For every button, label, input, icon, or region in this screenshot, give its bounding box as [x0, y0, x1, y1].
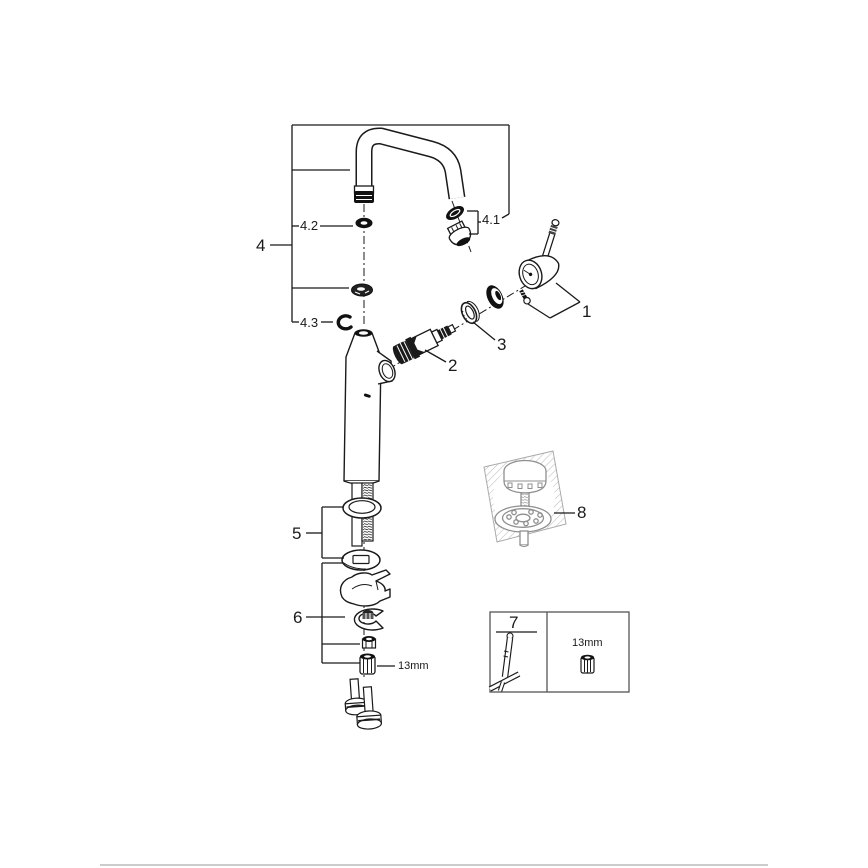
base-gasket-ring [343, 498, 381, 518]
label-part-3: 3 [497, 336, 506, 353]
callout-lines [270, 125, 580, 666]
label-part-8: 8 [577, 504, 586, 521]
spout-outlet-seal [444, 203, 467, 223]
retaining-clip [338, 316, 351, 329]
callout-group-5 [306, 507, 344, 558]
spout-tube [364, 136, 457, 198]
hex-nut [363, 636, 376, 648]
mounting-studs [344, 678, 382, 730]
label-group-5: 5 [292, 525, 301, 542]
label-part-4-2: 4.2 [300, 219, 318, 232]
label-group-6: 6 [293, 609, 302, 626]
horseshoe-clamp [354, 609, 383, 630]
faucet-exploded-drawing [0, 0, 868, 868]
label-group-4: 4 [256, 237, 265, 254]
label-part-4-3: 4.3 [300, 316, 318, 329]
label-13mm-diagram: 13mm [398, 661, 429, 672]
spout-end-collar [354, 186, 374, 203]
diagram-canvas: 4 4.1 4.2 4.3 1 2 3 5 6 8 13mm 7 13mm [0, 0, 868, 868]
escutcheon-cap [483, 282, 507, 311]
sleeve-nut-13mm [360, 654, 375, 675]
callout-part-3 [473, 322, 495, 340]
cartridge-retaining-ring [458, 299, 482, 326]
spout-bearing-washer [352, 284, 373, 296]
label-box-7: 7 [509, 614, 518, 631]
bottom-divider [100, 864, 768, 866]
label-part-4-1: 4.1 [482, 213, 500, 226]
label-13mm-box: 13mm [572, 638, 603, 649]
lever-handle [506, 217, 577, 292]
mounting-clamp-bracket [340, 570, 390, 606]
label-part-1: 1 [582, 303, 591, 320]
handle-screw [518, 289, 531, 305]
stabilizer-washer [342, 550, 380, 570]
label-part-2: 2 [448, 357, 457, 374]
socket-13mm-tool [581, 655, 594, 673]
spout-o-ring [356, 218, 373, 228]
callout-part-2 [425, 350, 446, 362]
drain-assembly [484, 451, 566, 547]
faucet-body [344, 329, 398, 484]
